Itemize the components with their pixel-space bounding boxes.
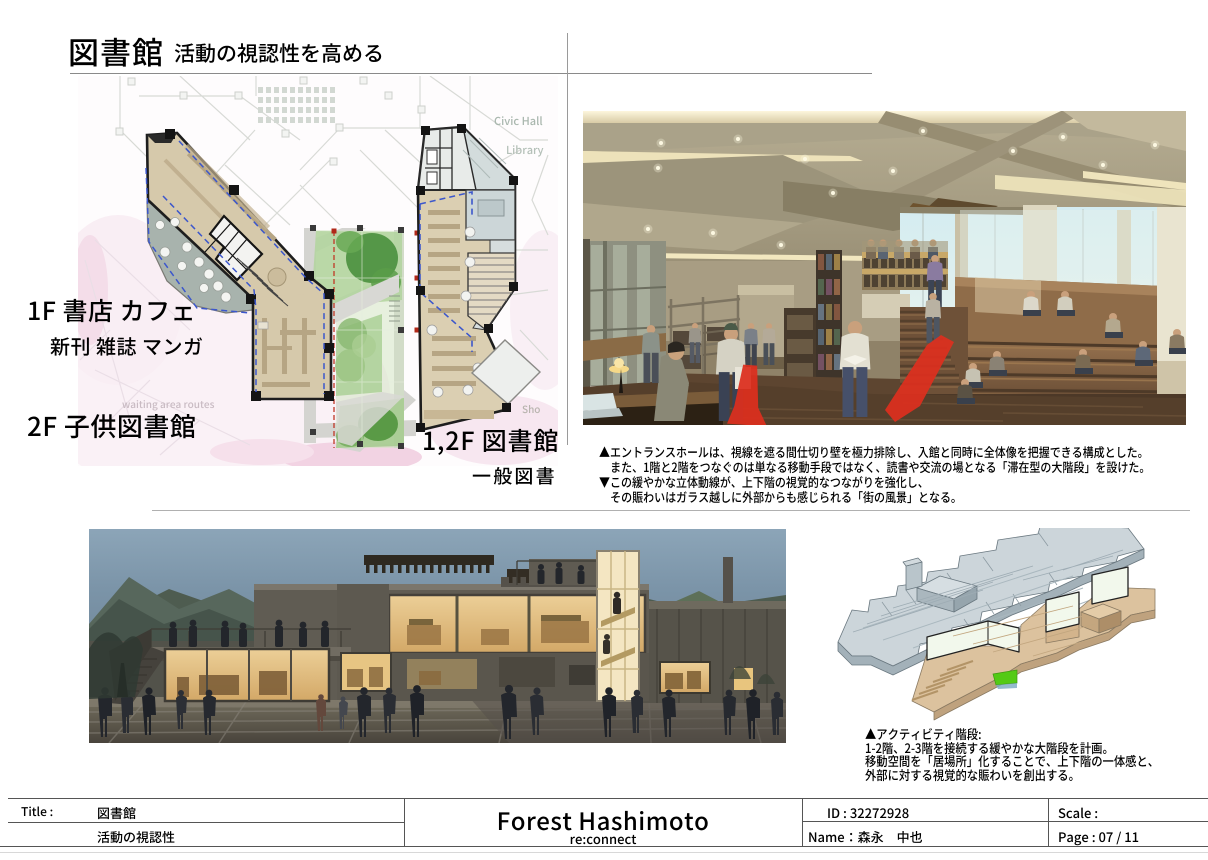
svg-text:Sho: Sho (522, 401, 540, 416)
svg-text:Library: Library (506, 142, 544, 158)
svg-text:Civic Hall: Civic Hall (494, 113, 543, 129)
